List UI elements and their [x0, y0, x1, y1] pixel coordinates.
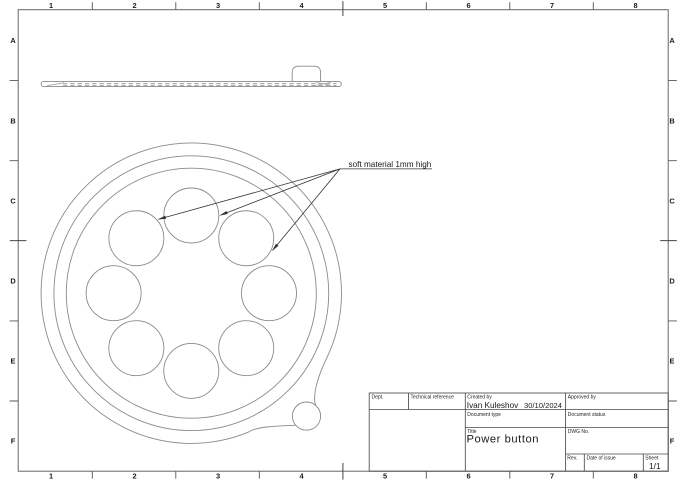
svg-text:7: 7: [550, 1, 554, 10]
svg-text:Approved by: Approved by: [568, 395, 597, 401]
svg-text:1/1: 1/1: [649, 461, 661, 471]
svg-text:Dept.: Dept.: [372, 395, 384, 401]
svg-text:Created by: Created by: [467, 395, 492, 401]
svg-text:B: B: [10, 116, 15, 125]
svg-text:6: 6: [466, 472, 470, 481]
svg-text:2: 2: [132, 472, 136, 481]
svg-text:3: 3: [216, 472, 220, 481]
svg-text:C: C: [669, 196, 675, 205]
svg-text:Power button: Power button: [467, 434, 540, 446]
svg-text:F: F: [11, 437, 16, 446]
svg-text:C: C: [10, 196, 16, 205]
svg-text:Rev.: Rev.: [567, 456, 577, 462]
svg-text:3: 3: [216, 1, 220, 10]
svg-text:Document status: Document status: [568, 412, 606, 418]
svg-text:5: 5: [383, 472, 387, 481]
svg-text:4: 4: [299, 472, 304, 481]
svg-text:D: D: [669, 277, 675, 286]
svg-text:E: E: [670, 357, 675, 366]
svg-text:30/10/2024: 30/10/2024: [524, 401, 562, 410]
svg-text:8: 8: [633, 472, 637, 481]
svg-text:4: 4: [299, 1, 304, 10]
svg-text:Date of issue: Date of issue: [587, 456, 616, 462]
svg-text:1: 1: [49, 472, 53, 481]
svg-text:DWG No.: DWG No.: [568, 429, 589, 435]
svg-text:1: 1: [49, 1, 53, 10]
svg-text:6: 6: [466, 1, 470, 10]
svg-text:B: B: [669, 116, 674, 125]
svg-text:D: D: [10, 277, 16, 286]
svg-text:8: 8: [633, 1, 637, 10]
svg-text:F: F: [670, 437, 675, 446]
svg-text:Document type: Document type: [467, 412, 501, 418]
svg-text:A: A: [669, 36, 675, 45]
svg-text:E: E: [11, 357, 16, 366]
svg-text:7: 7: [550, 472, 554, 481]
svg-text:A: A: [10, 36, 16, 45]
svg-text:Ivan Kuleshov: Ivan Kuleshov: [467, 401, 519, 410]
svg-text:Technical reference: Technical reference: [411, 395, 455, 401]
svg-text:5: 5: [383, 1, 387, 10]
svg-text:soft material 1mm high: soft material 1mm high: [349, 160, 432, 169]
svg-text:2: 2: [132, 1, 136, 10]
